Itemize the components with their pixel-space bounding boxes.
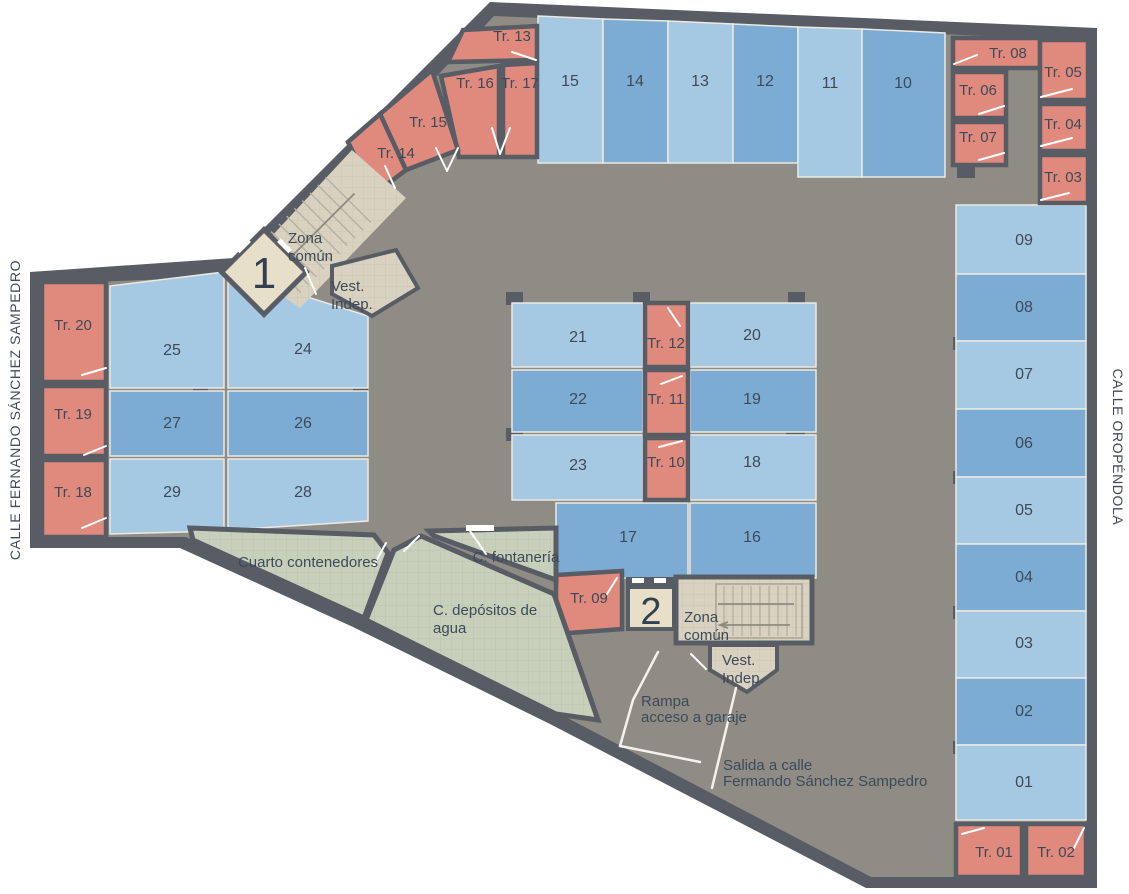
elevator-number: 2 [640, 591, 661, 633]
room-label-contenedores: Cuarto contenedores [238, 554, 378, 571]
storage-label: Tr. 14 [377, 145, 415, 162]
parking-label: 14 [626, 73, 644, 90]
parking-space-12[interactable] [733, 24, 798, 163]
annotation-rampa: acceso a garaje [641, 709, 747, 726]
storage-label: Tr. 10 [647, 454, 685, 471]
storage-label: Tr. 16 [456, 75, 494, 92]
parking-label: 12 [756, 73, 774, 90]
storage-label: Tr. 08 [989, 45, 1027, 62]
parking-label: 29 [163, 484, 181, 501]
storage-label: Tr. 13 [493, 28, 531, 45]
parking-label: 27 [163, 415, 181, 432]
parking-label: 04 [1015, 569, 1033, 586]
room-label-zona-comun-2: Zona [684, 609, 719, 626]
annotation-salida: Fermando Sánchez Sampedro [723, 773, 927, 790]
parking-label: 05 [1015, 502, 1033, 519]
parking-label: 16 [743, 529, 761, 546]
parking-label: 15 [561, 73, 579, 90]
parking-label: 11 [822, 75, 839, 92]
room-label-fontaneria: C. fontanería [473, 549, 560, 566]
storage-label: Tr. 03 [1044, 169, 1082, 186]
storage-label: Tr. 17 [501, 75, 539, 92]
storage-label: Tr. 18 [54, 484, 92, 501]
room-label-vest-indep-2: Vest. [722, 652, 755, 669]
storage-label: Tr. 05 [1044, 64, 1082, 81]
parking-label: 07 [1015, 366, 1033, 383]
parking-label: 28 [294, 484, 312, 501]
parking-label: 13 [691, 73, 709, 90]
parking-label: 21 [569, 329, 587, 346]
parking-label: 09 [1015, 232, 1033, 249]
room-label-vest-indep-2: Indep. [722, 670, 764, 687]
room-cuarto-contenedores [190, 528, 388, 618]
street-label-right: CALLE OROPÉNDOLA [1110, 369, 1126, 526]
parking-label: 01 [1015, 774, 1033, 791]
storage-label: Tr. 15 [409, 114, 447, 131]
storage-label: Tr. 06 [959, 82, 997, 99]
room-label-zona-comun-2: común [684, 627, 729, 644]
room-label-vest-indep-1: Indep. [331, 296, 373, 313]
storage-label: Tr. 02 [1037, 844, 1075, 861]
parking-label: 03 [1015, 635, 1033, 652]
parking-label: 19 [743, 391, 761, 408]
parking-space-11[interactable] [798, 27, 862, 177]
room-label-vest-indep-1: Vest. [331, 278, 364, 295]
parking-label: 26 [294, 415, 312, 432]
parking-label: 08 [1015, 299, 1033, 316]
room-label-depositos: agua [433, 620, 467, 637]
elevator-number: 1 [252, 249, 276, 298]
parking-label: 22 [569, 391, 587, 408]
storage-label: Tr. 04 [1044, 116, 1082, 133]
parking-label: 18 [743, 454, 761, 471]
storage-label: Tr. 19 [54, 406, 92, 423]
parking-label: 24 [294, 341, 312, 358]
parking-label: 25 [163, 342, 181, 359]
street-label-left: CALLE FERNANDO SÁNCHEZ SAMPEDRO [7, 260, 23, 560]
annotation-salida: Salida a calle [723, 757, 812, 774]
room-label-depositos: C. depósitos de [433, 602, 537, 619]
parking-label: 02 [1015, 703, 1033, 720]
room-label-zona-comun-1: Zona [288, 230, 323, 247]
parking-label: 17 [619, 529, 637, 546]
annotation-rampa: Rampa [641, 693, 690, 710]
parking-space-10[interactable] [862, 29, 945, 177]
floorplan-garage-level: 15 14 13 12 11 10 09 08 07 06 05 04 03 0… [0, 0, 1129, 894]
parking-space-14[interactable] [603, 19, 668, 163]
storage-label: Tr. 11 [648, 391, 685, 408]
parking-label: 20 [743, 327, 761, 344]
room-label-zona-comun-1: común [288, 248, 333, 265]
parking-space-13[interactable] [668, 21, 733, 163]
storage-label: Tr. 12 [647, 335, 685, 352]
parking-space-25[interactable] [110, 272, 224, 388]
storage-label: Tr. 07 [959, 129, 997, 146]
storage-label: Tr. 20 [54, 317, 92, 334]
parking-label: 10 [894, 75, 912, 92]
storage-label: Tr. 09 [570, 590, 608, 607]
parking-label: 06 [1015, 435, 1033, 452]
parking-label: 23 [569, 457, 587, 474]
storage-label: Tr. 01 [975, 844, 1013, 861]
